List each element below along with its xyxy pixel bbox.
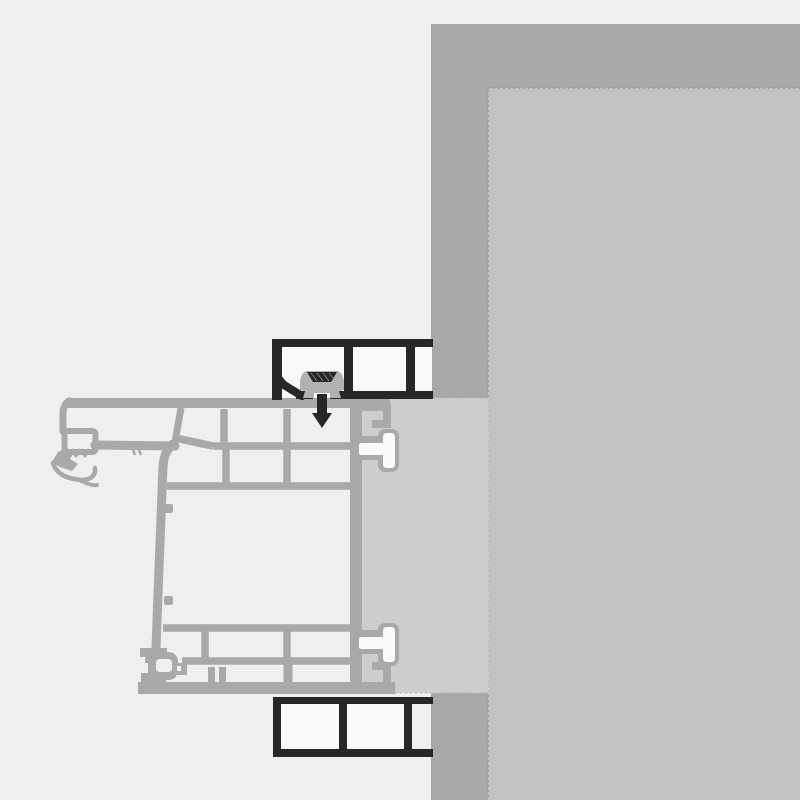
cross-section-diagram: [0, 0, 800, 800]
bottom-profile-divider: [339, 697, 347, 757]
diagram-stage: [0, 0, 800, 800]
t-stem: [359, 637, 386, 649]
top-profile-divider-1: [344, 340, 353, 399]
top-profile-divider-2: [406, 340, 415, 399]
hook-foot: [141, 673, 166, 683]
frame-arm: [95, 445, 175, 446]
t-stem: [359, 443, 386, 455]
hook-opening: [138, 663, 148, 673]
t-head: [383, 433, 395, 468]
wall-inner-face: [488, 88, 800, 800]
lug-foot: [372, 420, 391, 428]
mounting-profile-bottom: [273, 697, 433, 757]
bottom-profile-right-web: [404, 697, 412, 757]
screw-shaft: [317, 394, 327, 413]
t-head: [383, 627, 395, 662]
hook-tooth-notch: [177, 666, 181, 671]
frame-right-bar: [350, 398, 362, 694]
bottom-rib-2: [219, 667, 226, 684]
bottom-rib-1: [208, 667, 215, 684]
lug-foot: [372, 662, 391, 670]
top-profile-left-web: [272, 339, 282, 400]
frame-top-bar: [66, 398, 390, 408]
wall-nub-upper: [164, 504, 173, 513]
hook-hole: [156, 659, 172, 672]
bottom-profile-left-web: [273, 697, 281, 757]
wall-nub-lower: [164, 596, 173, 605]
